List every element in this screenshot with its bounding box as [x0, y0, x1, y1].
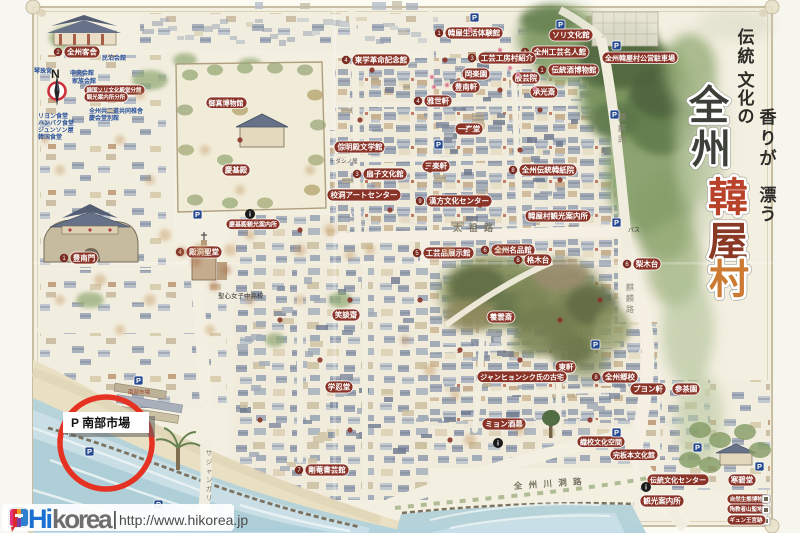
svg-text:南部市場: 南部市場: [128, 388, 151, 396]
svg-text:太 祖 路: 太 祖 路: [452, 222, 495, 233]
svg-text:文: 文: [738, 70, 756, 90]
svg-text:麒: 麒: [626, 282, 634, 292]
svg-text:化: 化: [738, 88, 755, 108]
svg-text:東軒: 東軒: [559, 362, 574, 372]
svg-text:ジュンソン屋: ジュンソン屋: [38, 126, 74, 134]
svg-text:雅世軒: 雅世軒: [427, 96, 450, 106]
svg-text:学忍堂: 学忍堂: [328, 382, 351, 392]
svg-text:工芸工房村紹介: 工芸工房村紹介: [481, 53, 534, 63]
svg-text:全州客舎: 全州客舎: [66, 47, 97, 57]
svg-text:麟: 麟: [626, 293, 634, 303]
svg-text:韓屋村観光案内所: 韓屋村観光案内所: [528, 211, 588, 221]
svg-text:全: 全: [688, 83, 730, 128]
svg-text:寒碧堂: 寒碧堂: [730, 475, 754, 485]
svg-text:全州工芸名人館: 全州工芸名人館: [533, 47, 587, 57]
svg-text:慶基殿観光案内所: 慶基殿観光案内所: [229, 220, 277, 228]
svg-text:i: i: [497, 441, 499, 448]
svg-text:ハンバク食堂: ハンバク食堂: [38, 119, 74, 127]
svg-text:伝: 伝: [738, 27, 755, 47]
svg-text:P: P: [757, 462, 762, 471]
svg-text:P: P: [472, 13, 477, 22]
svg-text:i: i: [645, 485, 647, 492]
svg-text:笑談齋: 笑談齋: [335, 310, 358, 320]
svg-text:漂: 漂: [760, 186, 777, 205]
svg-text:観光案内所: 観光案内所: [643, 496, 681, 506]
svg-text:慶基殿: 慶基殿: [225, 165, 248, 175]
svg-text:う: う: [760, 205, 777, 224]
svg-text:民泊会館: 民泊会館: [102, 54, 126, 62]
svg-text:香: 香: [760, 108, 777, 127]
svg-text:剛菴書芸館: 剛菴書芸館: [308, 465, 346, 475]
svg-text:ン: ン: [206, 477, 213, 484]
svg-text:全州伝統韓紙院: 全州伝統韓紙院: [521, 165, 575, 175]
svg-text:韓: 韓: [708, 176, 748, 220]
svg-text:梨木台: 梨木台: [635, 259, 659, 269]
svg-text:http://www.hikorea.jp: http://www.hikorea.jp: [119, 512, 248, 528]
svg-text:P: P: [87, 447, 92, 456]
svg-text:P: P: [593, 340, 598, 349]
svg-text:豊南門: 豊南門: [73, 253, 96, 263]
svg-text:格木台: 格木台: [527, 255, 550, 265]
svg-text:P 南部市場: P 南部市場: [71, 415, 130, 430]
svg-text:殉教者山聖地: 殉教者山聖地: [728, 505, 763, 513]
svg-text:路: 路: [626, 304, 634, 314]
svg-text:P: P: [614, 41, 619, 50]
svg-text:バス: バス: [628, 227, 640, 234]
svg-text:リ: リ: [206, 495, 213, 502]
svg-text:聖心女子中高校: 聖心女子中高校: [218, 291, 264, 300]
svg-text:伝統文化センター: 伝統文化センター: [650, 475, 706, 484]
svg-text:P: P: [195, 210, 200, 219]
svg-text:P: P: [614, 428, 619, 437]
svg-text:倧明殿文学館: 倧明殿文学館: [338, 142, 383, 152]
svg-text:完板本文化館: 完板本文化館: [613, 450, 655, 459]
svg-text:全州韓屋村公営駐車場: 全州韓屋村公営駐車場: [604, 53, 675, 62]
svg-text:豊南軒: 豊南軒: [455, 82, 478, 92]
svg-text:P: P: [614, 218, 619, 227]
svg-text:御真博物館: 御真博物館: [208, 98, 244, 107]
svg-text:織校文化空間: 織校文化空間: [580, 437, 622, 446]
svg-text:参茶園: 参茶園: [675, 384, 698, 394]
svg-text:トダシノ屋: トダシノ屋: [330, 157, 358, 165]
svg-text:伝統酒博物館: 伝統酒博物館: [552, 65, 597, 75]
svg-text:P: P: [558, 20, 563, 29]
svg-text:Hi: Hi: [28, 504, 51, 533]
svg-text:り: り: [760, 129, 777, 148]
svg-text:ジャンヒョンシク氏の古宅: ジャンヒョンシク氏の古宅: [480, 372, 564, 381]
svg-text:観光案内所分所: 観光案内所分所: [87, 93, 126, 101]
svg-text:扇子文化館: 扇子文化館: [366, 169, 404, 179]
svg-text:慶会堂別館: 慶会堂別館: [89, 114, 119, 122]
svg-text:プヨン軒: プヨン軒: [633, 384, 663, 394]
svg-text:琴珠宮: 琴珠宮: [33, 67, 52, 75]
svg-text:リヨン食堂: リヨン食堂: [38, 112, 68, 120]
svg-text:中央会館: 中央会館: [70, 69, 94, 77]
svg-text:サ: サ: [206, 449, 213, 457]
svg-text:が: が: [760, 148, 777, 168]
svg-text:路: 路: [618, 134, 626, 144]
svg-text:全州郷校: 全州郷校: [604, 372, 635, 382]
svg-text:i: i: [249, 212, 251, 219]
svg-text:統: 統: [738, 46, 755, 66]
svg-text:ギュン王宮跡: ギュン王宮跡: [729, 516, 763, 524]
svg-text:の: の: [738, 107, 755, 126]
svg-text:ャ: ャ: [206, 468, 213, 475]
svg-text:東学革命記念館: 東学革命記念館: [355, 55, 408, 65]
svg-text:ガ: ガ: [206, 484, 213, 493]
svg-text:P: P: [695, 443, 700, 452]
svg-text:養雲斎: 養雲斎: [489, 312, 513, 322]
svg-text:岡楽園: 岡楽園: [465, 69, 488, 79]
svg-text:村: 村: [709, 258, 749, 302]
svg-text:州: 州: [691, 128, 731, 172]
svg-text:ジ: ジ: [206, 459, 213, 466]
svg-text:校洞アートセンター: 校洞アートセンター: [330, 190, 397, 200]
svg-text:家族会館: 家族会館: [72, 77, 96, 85]
svg-text:全州共二道共同椎舎: 全州共二道共同椎舎: [88, 107, 144, 115]
svg-text:韓屋生活体験館: 韓屋生活体験館: [448, 28, 501, 38]
svg-text:P: P: [436, 140, 441, 149]
svg-text:P: P: [136, 376, 141, 385]
svg-text:麟: 麟: [618, 123, 626, 133]
svg-text:ソリ文化館: ソリ文化館: [552, 30, 590, 40]
svg-text:P: P: [612, 110, 617, 119]
svg-text:korea: korea: [52, 504, 113, 533]
